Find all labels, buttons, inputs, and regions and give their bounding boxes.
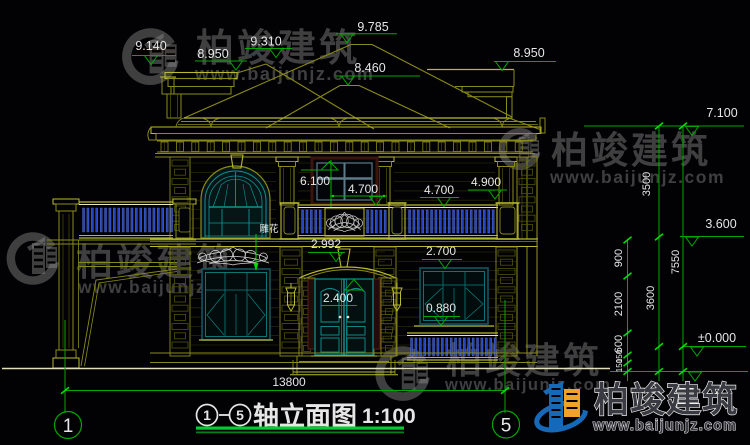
svg-text:1: 1 bbox=[203, 407, 211, 423]
svg-text:7.100: 7.100 bbox=[706, 106, 737, 120]
svg-text:雕花: 雕花 bbox=[259, 223, 279, 235]
svg-text:3500: 3500 bbox=[641, 172, 653, 196]
svg-text:3600: 3600 bbox=[645, 286, 657, 310]
svg-text:www.baijunjz.com: www.baijunjz.com bbox=[444, 376, 611, 394]
svg-text:8.950: 8.950 bbox=[513, 46, 544, 60]
svg-text:900: 900 bbox=[613, 249, 625, 267]
svg-text:1: 1 bbox=[63, 416, 74, 437]
svg-text:4.700: 4.700 bbox=[348, 182, 378, 196]
svg-text:4.700: 4.700 bbox=[424, 183, 454, 197]
svg-text:2.400: 2.400 bbox=[323, 291, 353, 305]
svg-text:柏竣建筑: 柏竣建筑 bbox=[594, 380, 738, 420]
svg-text:0.880: 0.880 bbox=[426, 301, 456, 315]
svg-text:9.310: 9.310 bbox=[250, 35, 281, 49]
svg-text:www.baijunjz.com: www.baijunjz.com bbox=[549, 167, 725, 187]
svg-text:5: 5 bbox=[501, 416, 512, 437]
svg-text:3.600: 3.600 bbox=[705, 217, 736, 231]
svg-text:9.785: 9.785 bbox=[357, 20, 388, 34]
svg-text:柏竣建筑: 柏竣建筑 bbox=[551, 129, 711, 171]
svg-text:2.700: 2.700 bbox=[426, 244, 456, 258]
svg-text:9.140: 9.140 bbox=[135, 39, 166, 53]
svg-text:8.950: 8.950 bbox=[197, 47, 228, 61]
svg-text:13800: 13800 bbox=[272, 375, 306, 389]
svg-text:150: 150 bbox=[615, 358, 624, 372]
svg-text:1:100: 1:100 bbox=[362, 405, 416, 428]
svg-text:6.100: 6.100 bbox=[300, 174, 330, 188]
svg-text:www.baijunjz.com: www.baijunjz.com bbox=[592, 418, 737, 434]
svg-text:8.460: 8.460 bbox=[354, 61, 385, 75]
svg-text:7550: 7550 bbox=[670, 250, 682, 274]
svg-text:±0.000: ±0.000 bbox=[698, 331, 736, 345]
svg-text:2.992: 2.992 bbox=[311, 237, 341, 251]
svg-text:5: 5 bbox=[236, 407, 244, 423]
svg-text:2100: 2100 bbox=[613, 292, 625, 316]
svg-text:4.900: 4.900 bbox=[471, 175, 501, 189]
